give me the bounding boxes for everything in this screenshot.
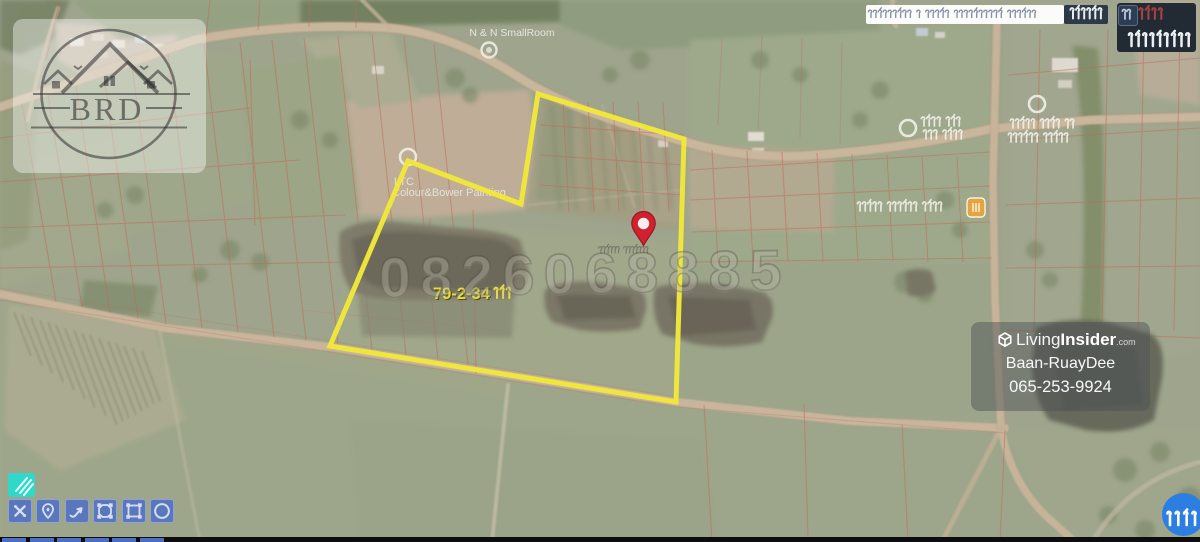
- svg-text:N & N SmallRoom: N & N SmallRoom: [469, 27, 554, 39]
- svg-text:BRD: BRD: [70, 91, 145, 127]
